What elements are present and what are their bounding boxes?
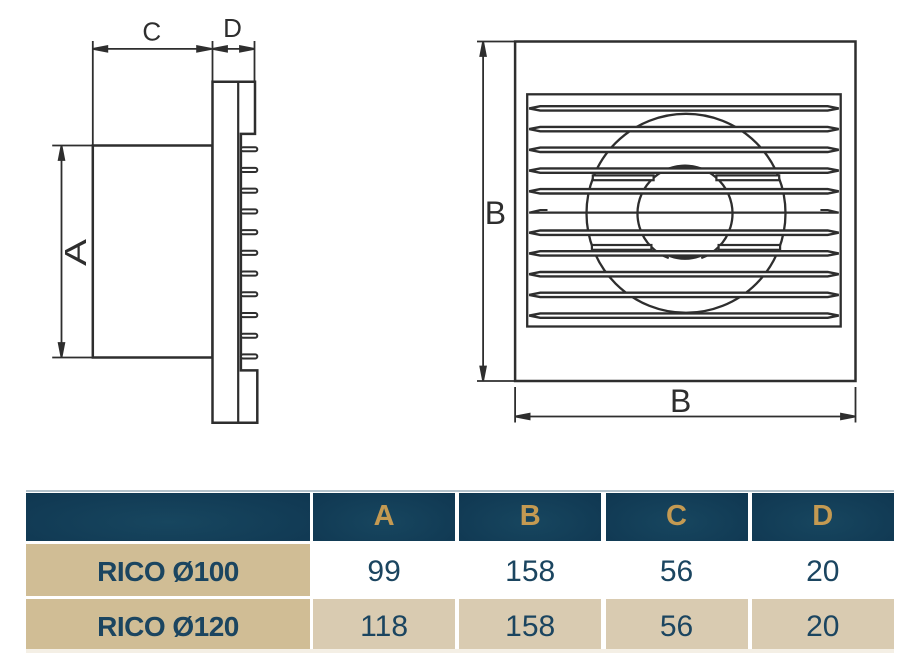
svg-text:B: B [485, 195, 506, 231]
svg-text:B: B [670, 383, 691, 419]
svg-text:A: A [58, 239, 93, 266]
svg-text:C: C [142, 16, 161, 46]
svg-text:D: D [223, 13, 242, 43]
